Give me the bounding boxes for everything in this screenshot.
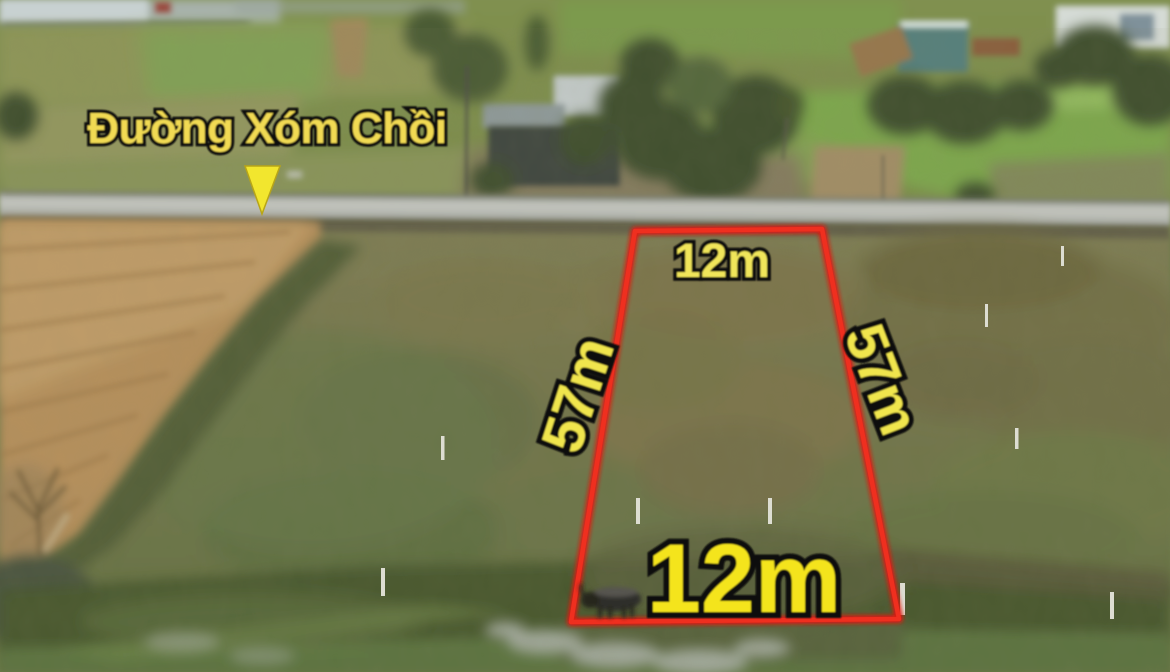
svg-text:12m: 12m: [647, 524, 841, 633]
svg-text:Đường Xóm Chồi: Đường Xóm Chồi: [87, 104, 446, 153]
svg-text:12m: 12m: [674, 235, 770, 288]
